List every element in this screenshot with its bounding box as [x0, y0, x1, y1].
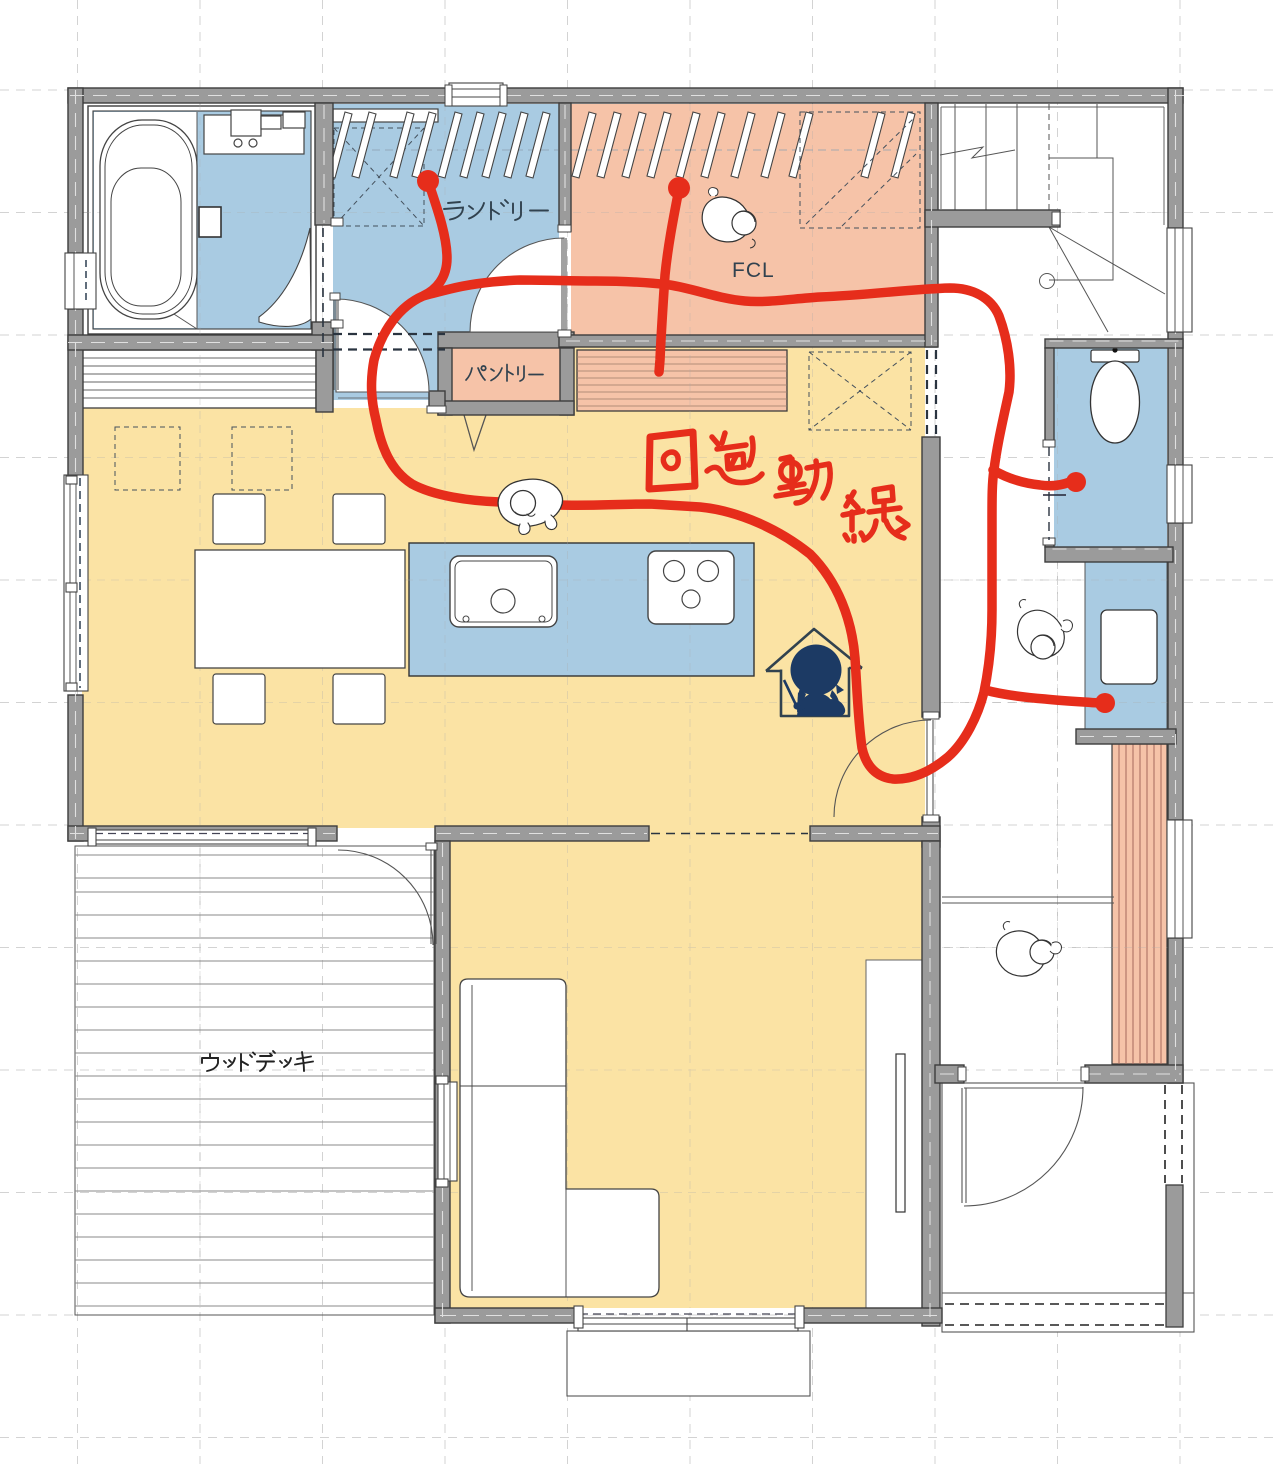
svg-text:FCL: FCL: [732, 259, 775, 282]
